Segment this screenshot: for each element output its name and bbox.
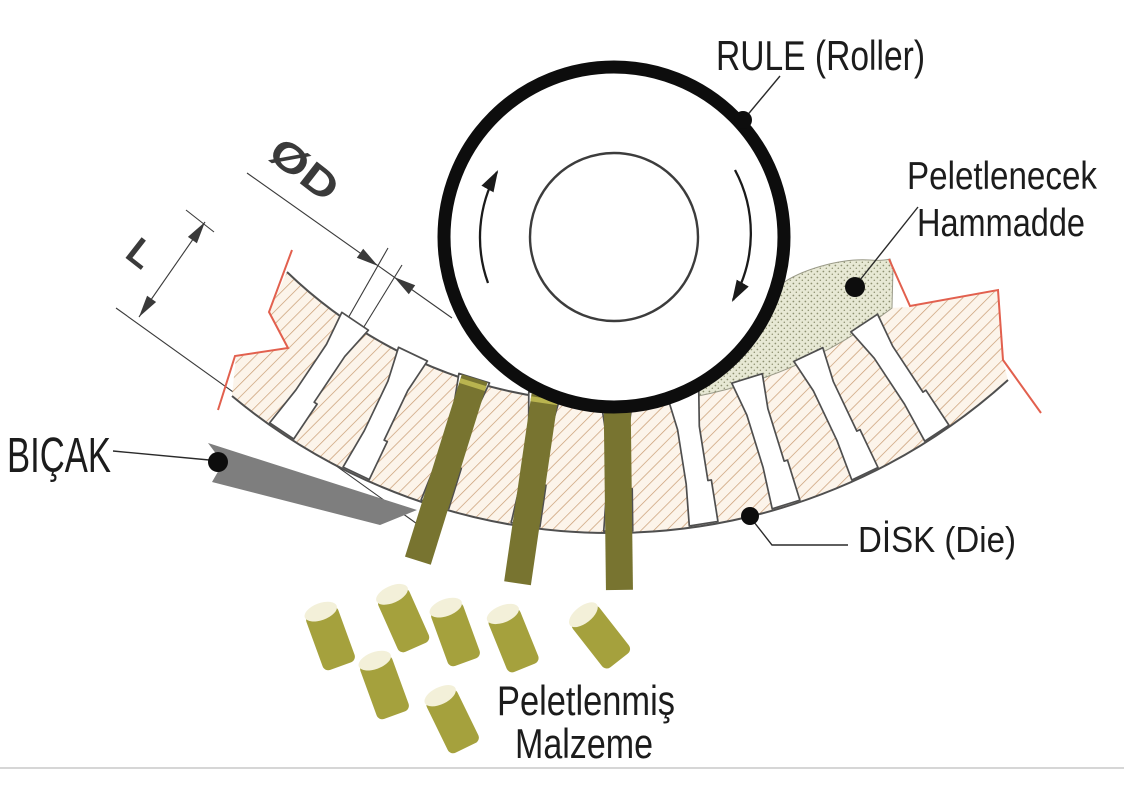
roller-hub xyxy=(530,153,698,321)
diagram-canvas: RULE (Roller) Peletlenecek Hammadde BIÇA… xyxy=(0,0,1124,798)
label-raw-material-line1: Peletlenecek xyxy=(907,155,1097,198)
label-knife: BIÇAK xyxy=(7,429,111,483)
pellet-cylinder xyxy=(421,681,481,756)
pellet-mill-diagram: RULE (Roller) Peletlenecek Hammadde BIÇA… xyxy=(0,0,1124,798)
label-dim-diameter: ØD xyxy=(261,129,348,210)
dim-tick xyxy=(362,265,402,330)
label-roller: RULE (Roller) xyxy=(716,32,925,79)
leader-dot-roller xyxy=(734,111,752,129)
leader-dot-knife xyxy=(208,452,228,472)
label-pellets-line2: Malzeme xyxy=(515,720,653,767)
pellet-cylinder xyxy=(302,598,357,672)
label-pellets-line1: Peletlenmiş xyxy=(497,677,675,724)
pellet-cylinder xyxy=(484,600,540,674)
leader-dot-die xyxy=(741,507,759,525)
roller xyxy=(444,67,784,407)
leader-knife xyxy=(113,451,220,461)
leader-die xyxy=(750,517,848,545)
leader-roller xyxy=(745,76,780,118)
pellet-strand xyxy=(604,399,633,590)
pellet-cylinder xyxy=(373,580,431,655)
label-raw-material-line2: Hammadde xyxy=(917,202,1085,245)
label-die: DİSK (Die) xyxy=(858,519,1016,560)
pellet-cylinder xyxy=(356,647,411,721)
pellet-cylinder xyxy=(565,598,633,671)
leader-dot-raw-material xyxy=(845,277,865,297)
pellet-cylinder xyxy=(427,594,482,668)
label-dim-length: L xyxy=(118,230,162,277)
